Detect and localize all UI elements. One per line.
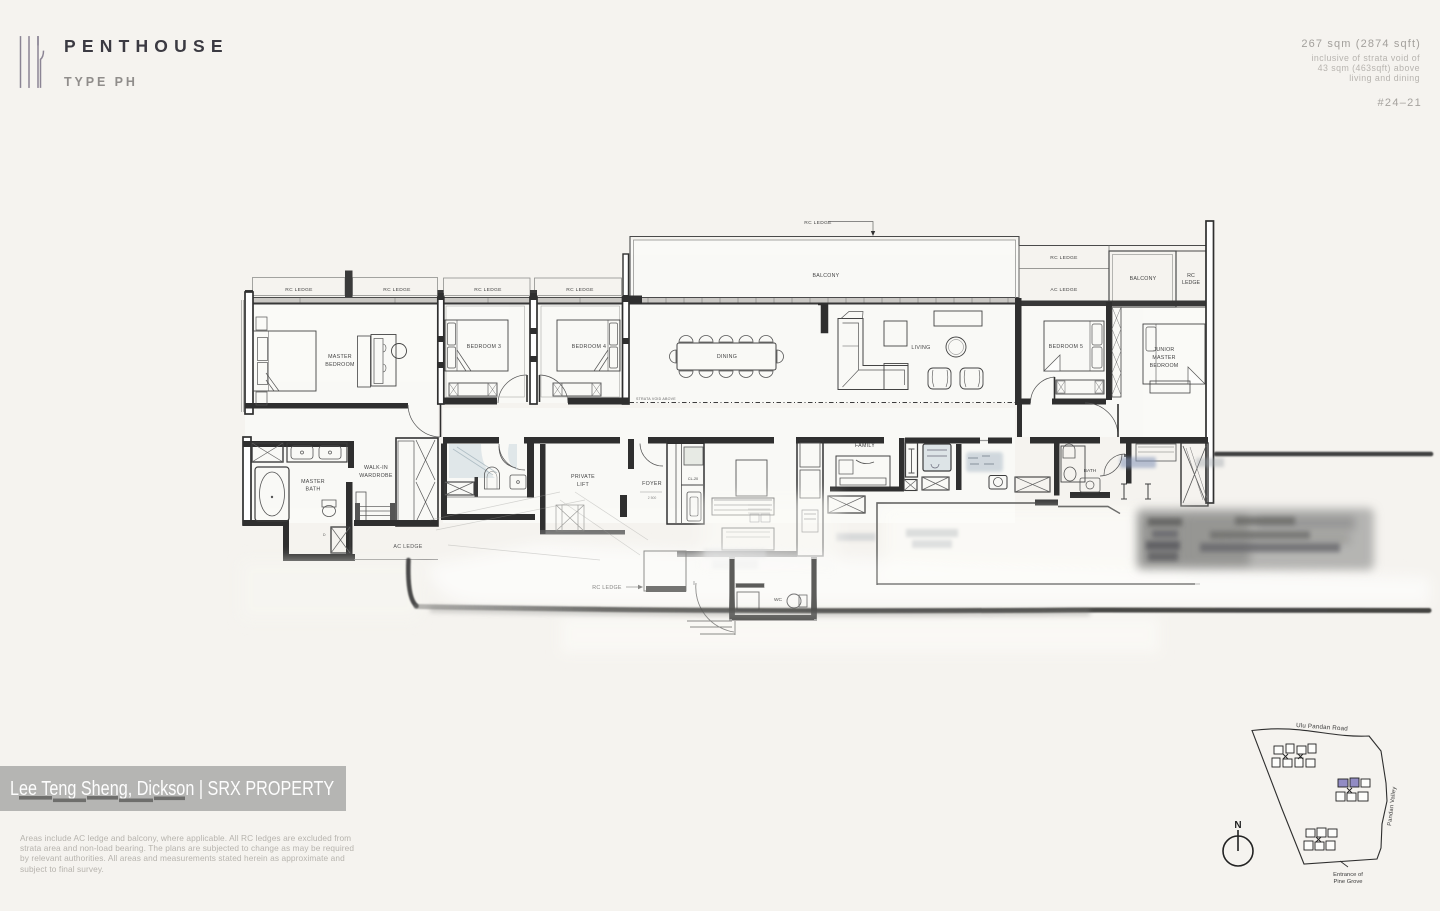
svg-text:CL-20: CL-20 — [688, 477, 698, 481]
svg-text:DINING: DINING — [717, 354, 737, 360]
svg-text:LIFT: LIFT — [577, 482, 590, 488]
svg-text:BEDROOM 4: BEDROOM 4 — [572, 344, 607, 350]
svg-text:MASTER: MASTER — [328, 354, 352, 360]
svg-text:RC LEDGE: RC LEDGE — [804, 220, 832, 226]
svg-text:Entrance of: Entrance of — [1333, 872, 1363, 878]
svg-text:RC LEDGE: RC LEDGE — [474, 287, 502, 293]
svg-text:BALCONY: BALCONY — [1130, 276, 1157, 282]
svg-text:BEDROOM 3: BEDROOM 3 — [467, 344, 502, 350]
svg-text:BEDROOM: BEDROOM — [1150, 363, 1179, 369]
svg-text:WARDROBE: WARDROBE — [359, 473, 393, 479]
svg-text:RC LEDGE: RC LEDGE — [592, 585, 622, 591]
svg-text:WC: WC — [774, 597, 783, 603]
svg-text:BEDROOM 5: BEDROOM 5 — [1049, 344, 1084, 350]
svg-text:FOYER: FOYER — [642, 481, 662, 487]
svg-text:RC LEDGE: RC LEDGE — [1050, 255, 1078, 261]
svg-text:RC LEDGE: RC LEDGE — [383, 287, 411, 293]
svg-text:LEDGE: LEDGE — [1182, 280, 1200, 286]
svg-text:FAMILY: FAMILY — [855, 443, 875, 449]
svg-text:RC LEDGE: RC LEDGE — [285, 287, 313, 293]
svg-text:LIVING: LIVING — [911, 345, 930, 351]
svg-text:AC LEDGE: AC LEDGE — [393, 544, 422, 550]
svg-text:STRATA VOID ABOVE: STRATA VOID ABOVE — [636, 397, 676, 401]
svg-text:AC LEDGE: AC LEDGE — [1050, 287, 1078, 293]
svg-text:Ulu Pandan Road: Ulu Pandan Road — [1296, 722, 1349, 733]
svg-text:2 500: 2 500 — [648, 496, 657, 500]
svg-text:JUNIOR: JUNIOR — [1154, 347, 1175, 353]
svg-text:BEDROOM: BEDROOM — [325, 362, 354, 368]
svg-text:BATH: BATH — [1084, 468, 1097, 474]
svg-text:Pine Grove: Pine Grove — [1334, 879, 1363, 885]
svg-text:MASTER: MASTER — [301, 479, 325, 485]
svg-text:WALK-IN: WALK-IN — [364, 465, 388, 471]
svg-text:BALCONY: BALCONY — [813, 273, 840, 279]
svg-text:RC LEDGE: RC LEDGE — [566, 287, 594, 293]
svg-text:D: D — [323, 533, 326, 537]
svg-text:BATH: BATH — [306, 487, 321, 493]
svg-text:RC: RC — [1187, 273, 1195, 279]
svg-text:N: N — [1234, 820, 1241, 831]
svg-text:Pandan Valley: Pandan Valley — [1387, 786, 1398, 826]
svg-text:PRIVATE: PRIVATE — [571, 474, 595, 480]
